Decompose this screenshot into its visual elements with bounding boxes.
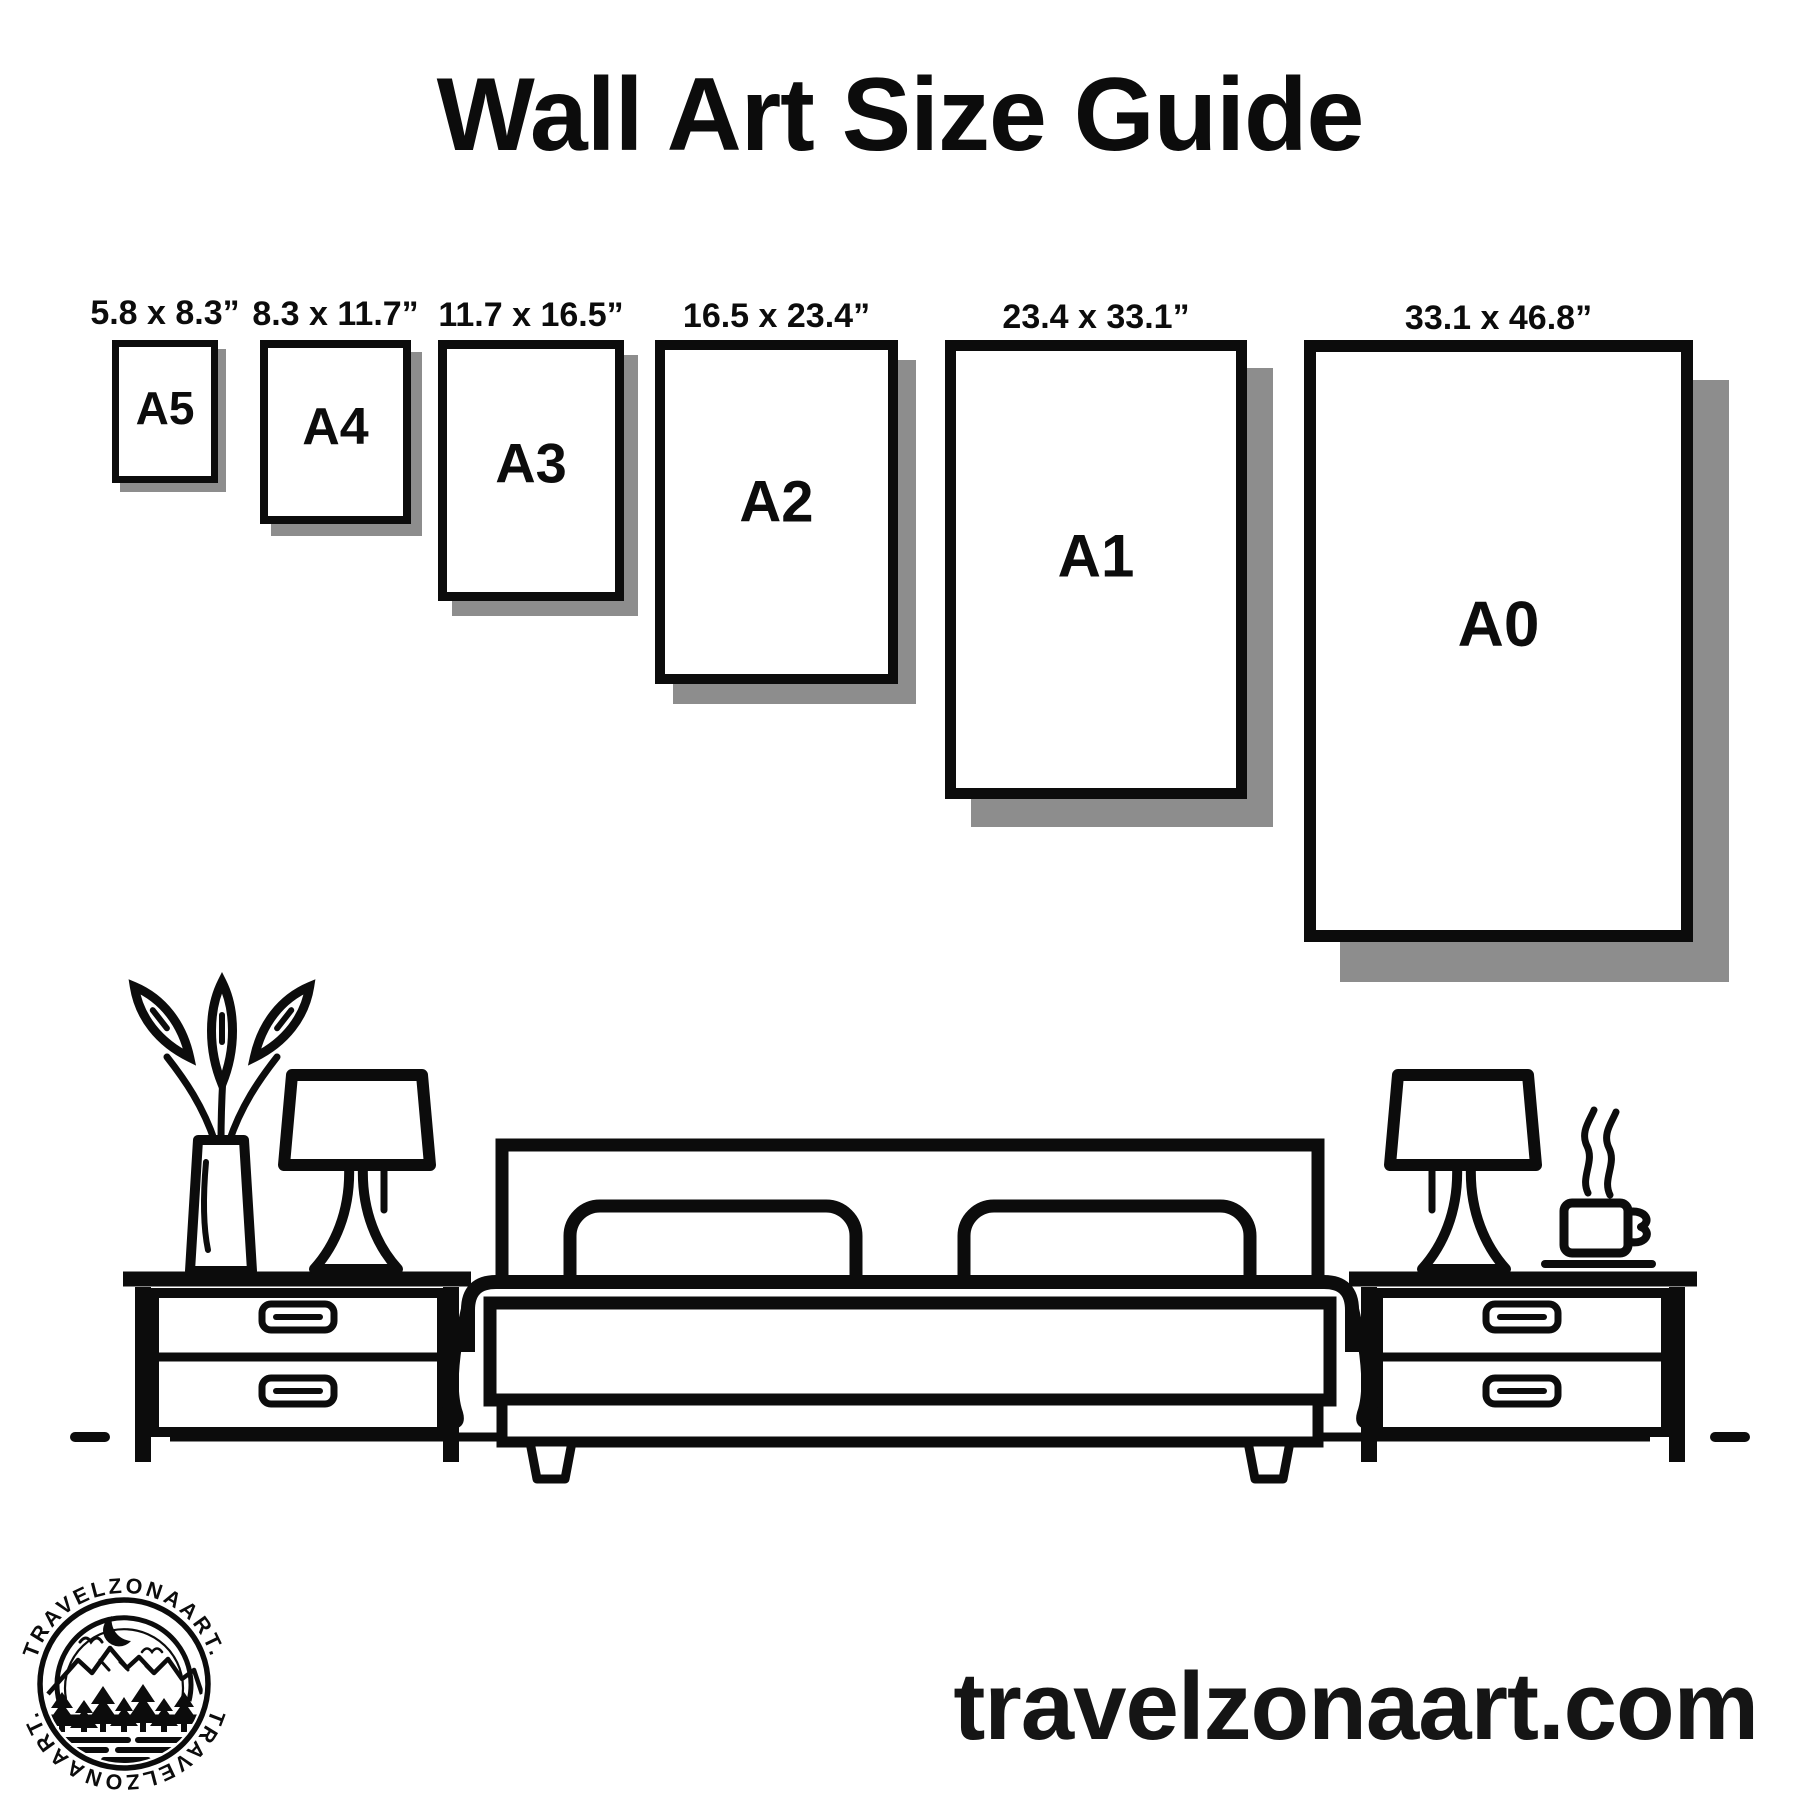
nightstand-left bbox=[123, 1279, 471, 1462]
steam-icon bbox=[1607, 1112, 1616, 1195]
leaf-icon bbox=[245, 980, 318, 1065]
website-url: travelzonaart.com bbox=[953, 1652, 1758, 1762]
bud-icon bbox=[212, 982, 233, 1084]
table-lamp-left-icon bbox=[284, 1075, 430, 1269]
bedroom-scene: TRAVELZONAART. TRAVELZONAART. bbox=[0, 0, 1800, 1800]
bed-base bbox=[502, 1400, 1318, 1442]
bed-icon bbox=[443, 1145, 1376, 1479]
bird-icon bbox=[142, 1649, 162, 1653]
wall-art-size-guide-poster: { "poster": { "title": "Wall Art Size Gu… bbox=[0, 0, 1800, 1800]
mattress bbox=[490, 1303, 1330, 1400]
nightstand-right bbox=[1349, 1279, 1697, 1462]
brand-logo-badge: TRAVELZONAART. TRAVELZONAART. bbox=[18, 1574, 229, 1795]
mountains-icon bbox=[48, 1648, 202, 1694]
coffee-cup-icon bbox=[1545, 1110, 1652, 1264]
leaf-icon bbox=[125, 980, 198, 1065]
pine-trees-icon bbox=[45, 1684, 200, 1732]
steam-icon bbox=[1585, 1110, 1594, 1193]
table-lamp-right-icon bbox=[1390, 1075, 1536, 1269]
